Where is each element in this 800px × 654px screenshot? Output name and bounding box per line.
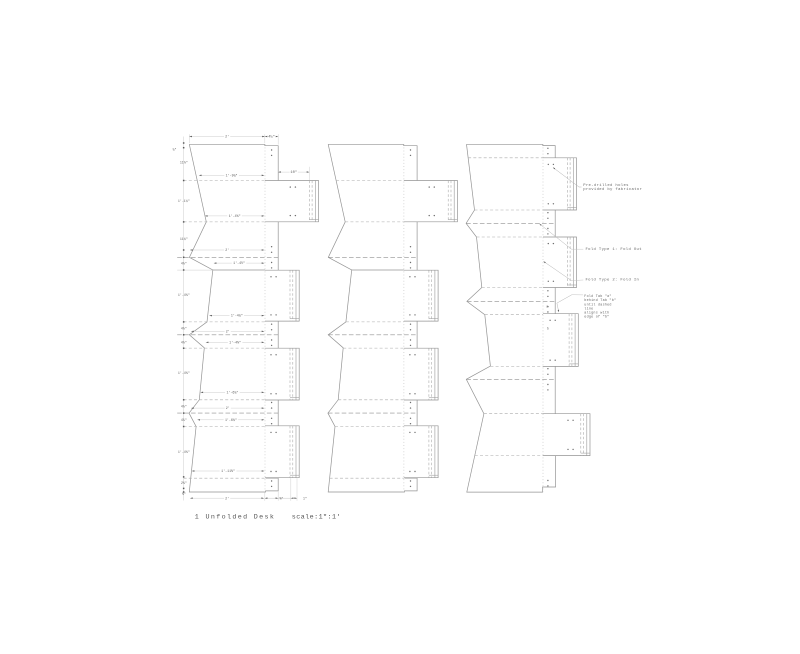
- svg-text:1 Unfolded Desk: 1 Unfolded Desk: [195, 514, 275, 522]
- svg-text:⅝": ⅝": [182, 492, 186, 496]
- svg-text:4⅞": 4⅞": [181, 327, 187, 331]
- svg-text:4¼": 4¼": [268, 135, 274, 140]
- svg-text:11¾": 11¾": [180, 237, 188, 241]
- svg-text:Fold Type 1: Fold Out: Fold Type 1: Fold Out: [586, 247, 642, 252]
- svg-text:10": 10": [290, 170, 297, 175]
- svg-text:1'-4⅝": 1'-4⅝": [178, 371, 190, 375]
- svg-text:scale:1":1': scale:1":1': [292, 514, 341, 522]
- svg-text:Fold Type 2: Fold In: Fold Type 2: Fold In: [586, 277, 640, 282]
- svg-text:2': 2': [225, 496, 229, 500]
- svg-text:⅝": ⅝": [280, 496, 284, 500]
- svg-text:4⅞": 4⅞": [181, 340, 187, 344]
- svg-text:1'-4⅝": 1'-4⅝": [178, 293, 190, 297]
- svg-text:1'-11⅝": 1'-11⅝": [221, 469, 235, 473]
- svg-text:edge of "b": edge of "b": [584, 314, 609, 319]
- svg-text:1'-4½": 1'-4½": [233, 261, 245, 265]
- svg-text:1'-4⅝": 1'-4⅝": [229, 340, 241, 344]
- svg-text:¾": ¾": [173, 148, 177, 152]
- svg-text:provided by fabricator: provided by fabricator: [583, 187, 642, 192]
- svg-text:4⅞": 4⅞": [181, 405, 187, 409]
- svg-text:b: b: [547, 326, 549, 331]
- svg-text:1'-9¾": 1'-9¾": [226, 173, 238, 177]
- svg-text:2': 2': [226, 406, 230, 410]
- svg-text:11⅝": 11⅝": [180, 161, 188, 165]
- svg-text:2': 2': [226, 329, 230, 333]
- svg-text:4⅞": 4⅞": [181, 418, 187, 422]
- svg-text:1'-6¾": 1'-6¾": [226, 390, 238, 394]
- svg-text:1'-4⅝": 1'-4⅝": [229, 214, 241, 218]
- svg-text:1'-4¾": 1'-4¾": [231, 314, 243, 318]
- svg-text:1'-1¼": 1'-1¼": [178, 199, 190, 203]
- svg-text:1'-4⅝": 1'-4⅝": [178, 450, 190, 454]
- svg-text:2': 2': [225, 135, 229, 139]
- svg-text:2': 2': [225, 248, 229, 252]
- svg-text:4⅞": 4⅞": [181, 261, 187, 265]
- svg-text:2⅝": 2⅝": [181, 481, 187, 485]
- svg-text:1'-6¾": 1'-6¾": [225, 418, 237, 422]
- svg-text:1": 1": [303, 496, 307, 500]
